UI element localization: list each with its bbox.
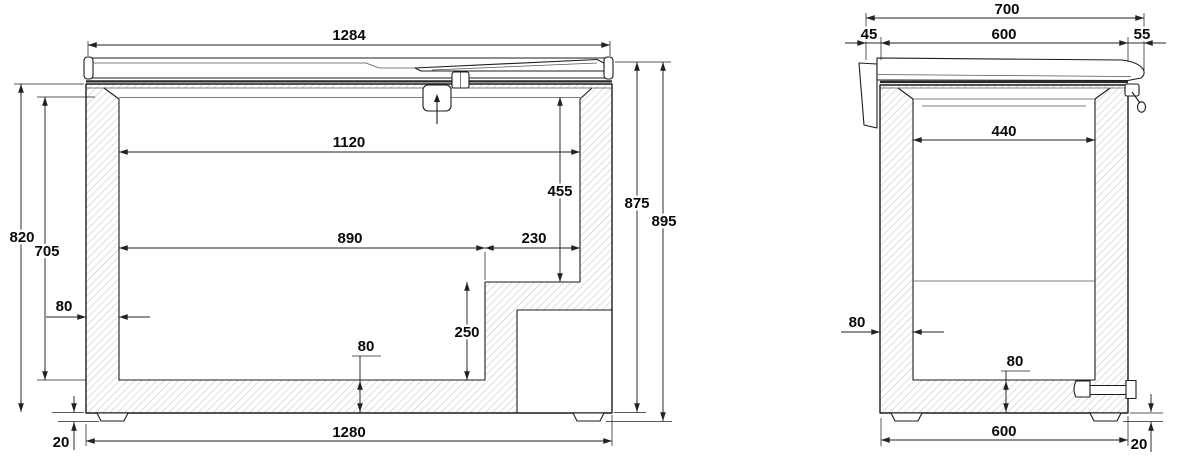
- lid-side-view: [877, 58, 1144, 81]
- dim-lid-width: 1284: [332, 27, 366, 44]
- dim-overall-width: 700: [994, 1, 1019, 18]
- lid-right-cap: [604, 57, 613, 79]
- lid-front-view: [84, 57, 613, 79]
- freezer-technical-drawing: 1284 1120 455 890 230 250: [0, 0, 1181, 469]
- dim-height-without-feet: 875: [624, 195, 649, 212]
- foot-left: [97, 413, 128, 421]
- side-foot-right: [1090, 413, 1121, 421]
- foot-right: [573, 413, 604, 421]
- compressor-recess-outline: [517, 310, 612, 413]
- side-lock-box: [1125, 84, 1139, 96]
- lock-assembly: [423, 72, 469, 124]
- front-section-view: 1284 1120 455 890 230 250: [9, 27, 676, 451]
- side-foot-left: [891, 413, 922, 421]
- dim-side-wall-thickness: 80: [849, 314, 866, 331]
- dim-inner-depth-upper: 455: [547, 183, 572, 200]
- dim-inner-depth: 705: [34, 243, 59, 260]
- dim-hinge-overhang: 45: [861, 26, 878, 43]
- dim-inner-width-top: 1120: [333, 134, 366, 151]
- lid-left-cap: [84, 57, 93, 79]
- hinge-bracket: [859, 63, 877, 128]
- dim-overall-height: 895: [651, 213, 676, 230]
- side-section-view: 700 45 600 55 440 80 80: [841, 1, 1166, 453]
- side-key-bow: [1138, 102, 1146, 112]
- dim-wall-thickness: 80: [56, 298, 73, 315]
- dim-inner-width-lower: 890: [337, 230, 362, 247]
- dim-floor-thickness: 80: [358, 338, 375, 355]
- dim-step-width: 230: [521, 230, 546, 247]
- dim-inner-width: 440: [991, 123, 1016, 140]
- dim-side-floor-thickness: 80: [1007, 353, 1024, 370]
- dim-handle-overhang: 55: [1134, 26, 1151, 43]
- dim-step-height: 250: [454, 324, 479, 341]
- dim-body-width: 600: [991, 26, 1016, 43]
- dim-side-foot-height: 20: [1131, 436, 1148, 453]
- dim-side-base-width: 600: [991, 423, 1016, 440]
- dim-base-width: 1280: [332, 424, 365, 441]
- dim-body-height: 820: [9, 229, 34, 246]
- drawing-canvas: 1284 1120 455 890 230 250: [0, 0, 1181, 469]
- dim-foot-height: 20: [53, 434, 70, 451]
